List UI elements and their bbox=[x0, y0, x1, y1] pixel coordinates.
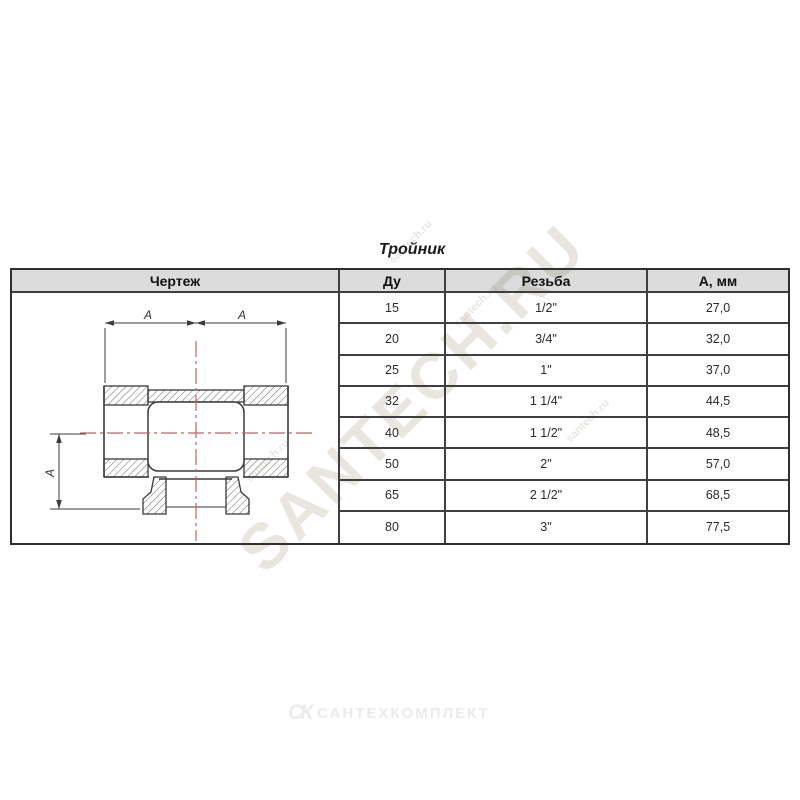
cell-dn: 25 bbox=[340, 356, 446, 387]
cell-a: 57,0 bbox=[648, 449, 788, 480]
footer-brand-text: САНТЕХКОМПЛЕКТ bbox=[317, 705, 490, 722]
cell-dn: 15 bbox=[340, 293, 446, 324]
tee-fitting-drawing: A A A bbox=[12, 293, 340, 543]
cell-a: 68,5 bbox=[648, 481, 788, 512]
dim-label-a-left: A bbox=[143, 308, 152, 322]
cell-thread: 3" bbox=[446, 512, 648, 543]
dim-label-a-vertical: A bbox=[43, 469, 57, 478]
spec-table: Чертеж Ду Резьба А, мм A A bbox=[10, 268, 790, 545]
cell-dn: 80 bbox=[340, 512, 446, 543]
cell-thread: 3/4" bbox=[446, 324, 648, 355]
cell-dn: 65 bbox=[340, 481, 446, 512]
cell-dn: 40 bbox=[340, 418, 446, 449]
page-title: Тройник bbox=[22, 241, 800, 259]
cell-thread: 1 1/4" bbox=[446, 387, 648, 418]
cell-a: 48,5 bbox=[648, 418, 788, 449]
cell-thread: 2" bbox=[446, 449, 648, 480]
dim-label-a-right: A bbox=[237, 308, 246, 322]
cell-a: 44,5 bbox=[648, 387, 788, 418]
cell-thread: 1/2" bbox=[446, 293, 648, 324]
cell-a: 27,0 bbox=[648, 293, 788, 324]
col-header-thread: Резьба bbox=[446, 270, 648, 293]
footer-brand-watermark: СК САНТЕХКОМПЛЕКТ bbox=[288, 701, 490, 725]
cell-thread: 1" bbox=[446, 356, 648, 387]
cell-dn: 50 bbox=[340, 449, 446, 480]
cell-a: 32,0 bbox=[648, 324, 788, 355]
col-header-dn: Ду bbox=[340, 270, 446, 293]
sk-logo-icon: СК bbox=[288, 701, 310, 725]
cell-a: 37,0 bbox=[648, 356, 788, 387]
col-header-a-mm: А, мм bbox=[648, 270, 788, 293]
tee-fitting-svg: A A A bbox=[12, 293, 340, 545]
col-header-drawing: Чертеж bbox=[12, 270, 340, 293]
cell-thread: 1 1/2" bbox=[446, 418, 648, 449]
cell-dn: 20 bbox=[340, 324, 446, 355]
cell-dn: 32 bbox=[340, 387, 446, 418]
cell-thread: 2 1/2" bbox=[446, 481, 648, 512]
cell-a: 77,5 bbox=[648, 512, 788, 543]
